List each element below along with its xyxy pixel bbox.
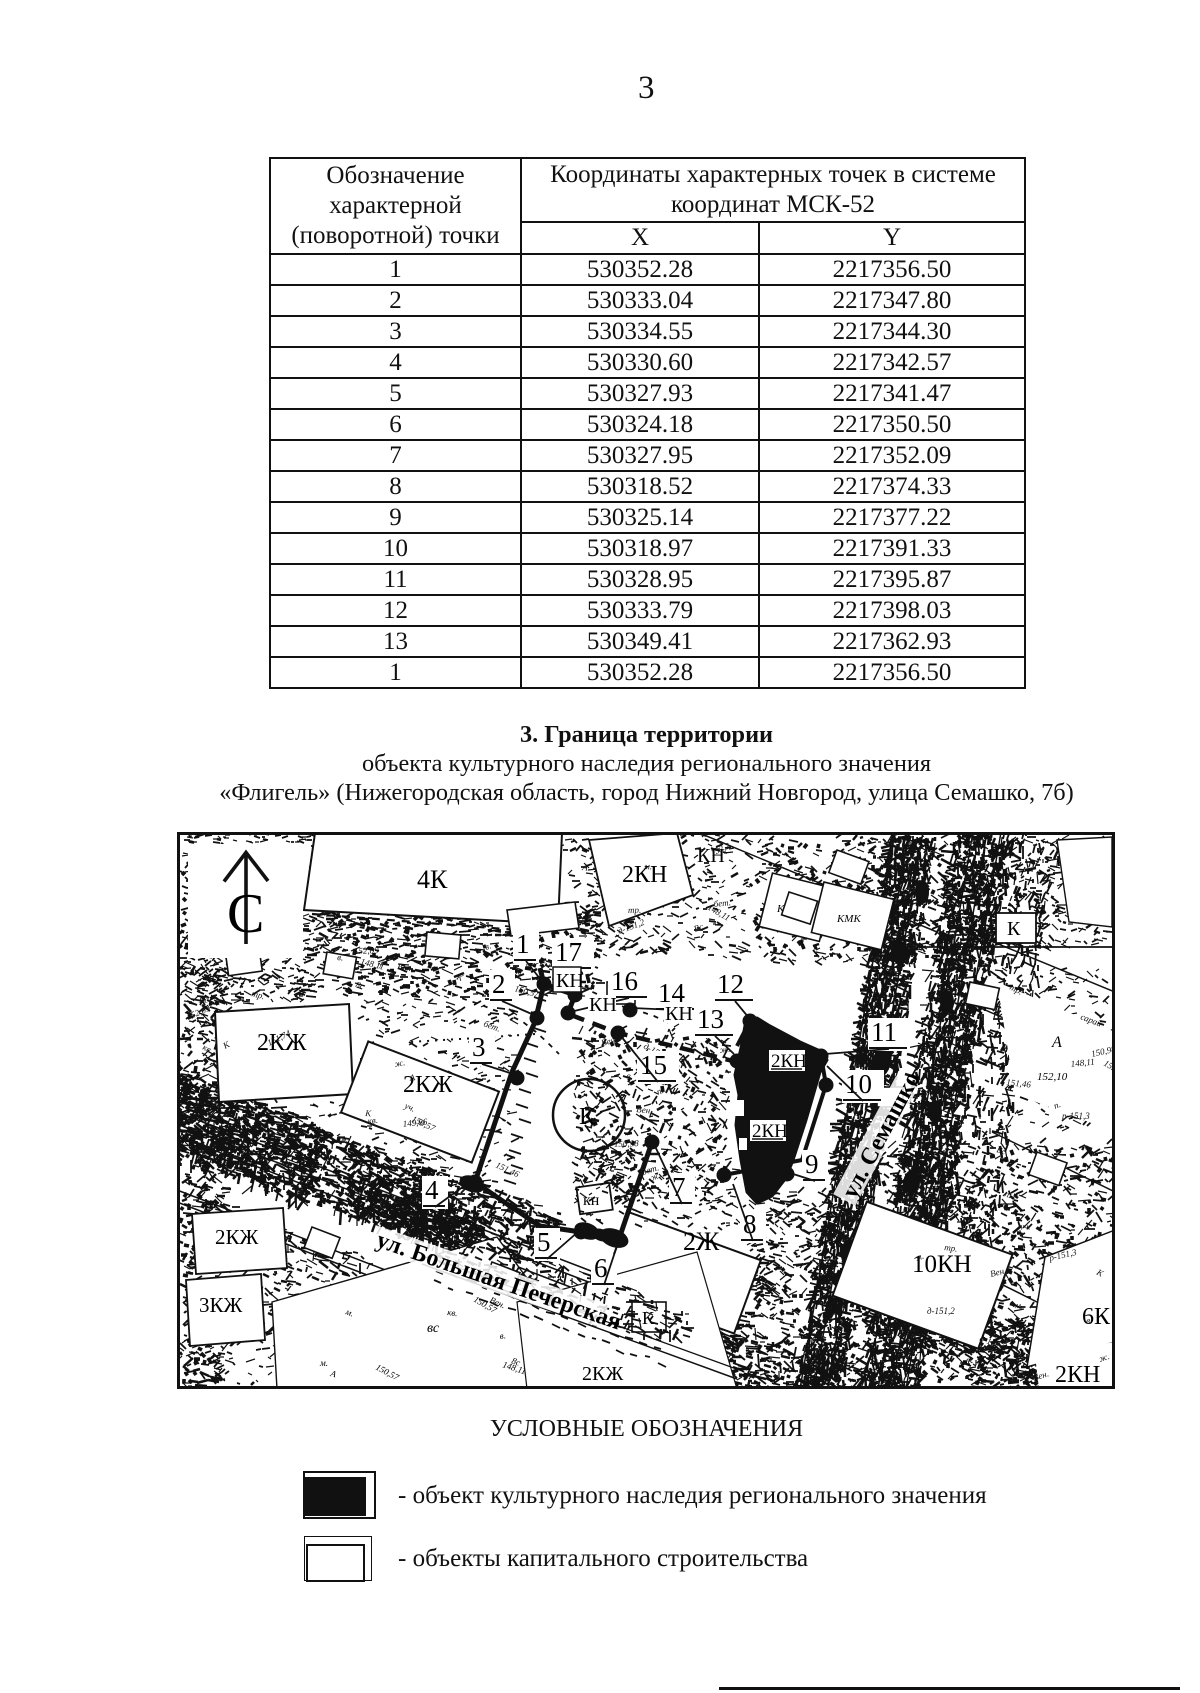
svg-text:3КЖ: 3КЖ <box>199 1293 243 1317</box>
svg-text:кн: кн <box>583 1192 600 1209</box>
svg-text:вс: вс <box>427 1321 440 1336</box>
svg-text:12: 12 <box>717 969 744 999</box>
svg-text:К: К <box>642 1308 655 1328</box>
svg-text:А: А <box>1051 1034 1062 1051</box>
svg-text:тр.: тр. <box>944 1242 959 1254</box>
svg-text:4К: 4К <box>417 865 448 894</box>
svg-text:С: С <box>227 883 264 945</box>
svg-text:в.: в. <box>337 952 344 962</box>
svg-text:17: 17 <box>555 937 582 967</box>
svg-text:9: 9 <box>805 1149 819 1179</box>
svg-text:152,10: 152,10 <box>1037 1071 1068 1083</box>
svg-text:К: К <box>1007 918 1021 940</box>
svg-text:152,09: 152,09 <box>354 945 380 956</box>
svg-text:р-151,3: р-151,3 <box>1061 1111 1090 1121</box>
svg-text:8: 8 <box>743 1209 757 1239</box>
svg-text:10: 10 <box>845 1069 872 1099</box>
svg-text:КН: КН <box>665 1003 693 1025</box>
svg-text:Вен.: Вен. <box>636 1104 653 1116</box>
svg-text:11: 11 <box>871 1017 897 1047</box>
svg-text:м.: м. <box>319 1358 328 1368</box>
svg-text:К: К <box>579 1104 596 1130</box>
svg-text:уч.: уч. <box>1019 1221 1031 1232</box>
svg-text:2Ж: 2Ж <box>683 1227 720 1256</box>
svg-text:тр.: тр. <box>628 905 641 915</box>
svg-text:2КЖ: 2КЖ <box>215 1225 259 1249</box>
svg-text:1: 1 <box>516 929 530 959</box>
svg-text:3: 3 <box>472 1032 486 1062</box>
svg-text:КМК: КМК <box>836 913 861 925</box>
svg-text:д-151,2: д-151,2 <box>927 1306 955 1316</box>
svg-text:м.: м. <box>1014 1300 1024 1311</box>
svg-text:КН: КН <box>589 994 617 1016</box>
svg-text:2: 2 <box>492 969 506 999</box>
svg-text:м.: м. <box>643 861 653 871</box>
svg-text:13: 13 <box>697 1004 724 1034</box>
svg-text:16: 16 <box>611 966 638 996</box>
svg-text:4: 4 <box>425 1175 439 1205</box>
svg-text:бет.: бет. <box>713 897 731 909</box>
svg-text:150,98: 150,98 <box>614 1138 640 1149</box>
svg-text:5: 5 <box>537 1227 551 1257</box>
svg-text:2КЖ: 2КЖ <box>582 1363 623 1385</box>
svg-text:ж.: ж. <box>394 1057 406 1069</box>
svg-text:в.: в. <box>499 1330 506 1341</box>
svg-text:2КН: 2КН <box>1055 1362 1100 1388</box>
svg-text:КН: КН <box>556 970 584 992</box>
svg-text:кв.: кв. <box>447 1307 459 1318</box>
